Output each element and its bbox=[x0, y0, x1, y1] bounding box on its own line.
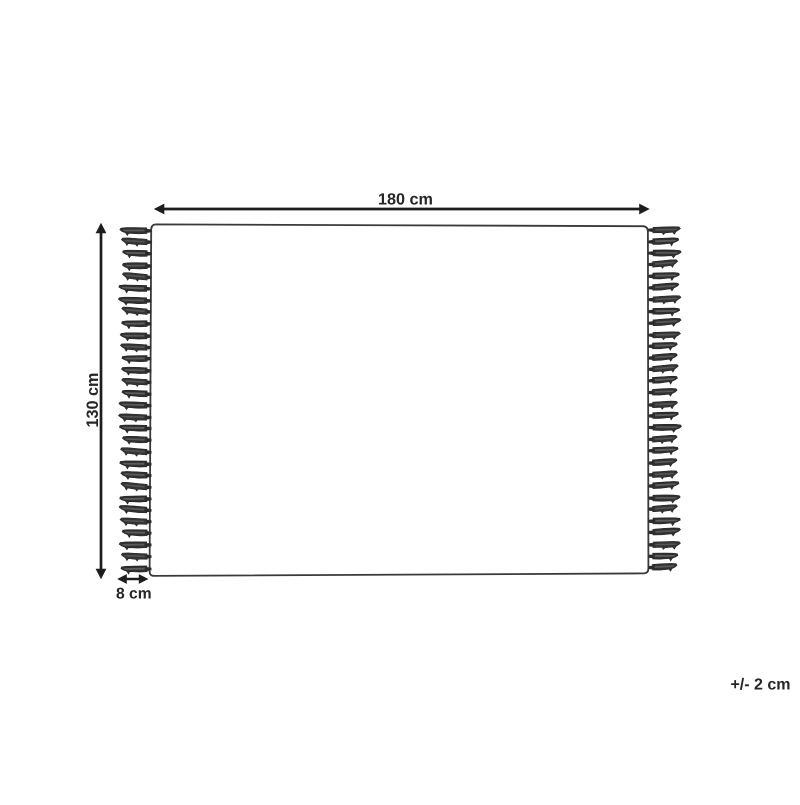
svg-text:+/- 2 cm: +/- 2 cm bbox=[730, 676, 790, 693]
svg-text:8 cm: 8 cm bbox=[116, 585, 152, 602]
svg-text:130 cm: 130 cm bbox=[84, 373, 102, 428]
svg-text:180 cm: 180 cm bbox=[378, 190, 433, 208]
